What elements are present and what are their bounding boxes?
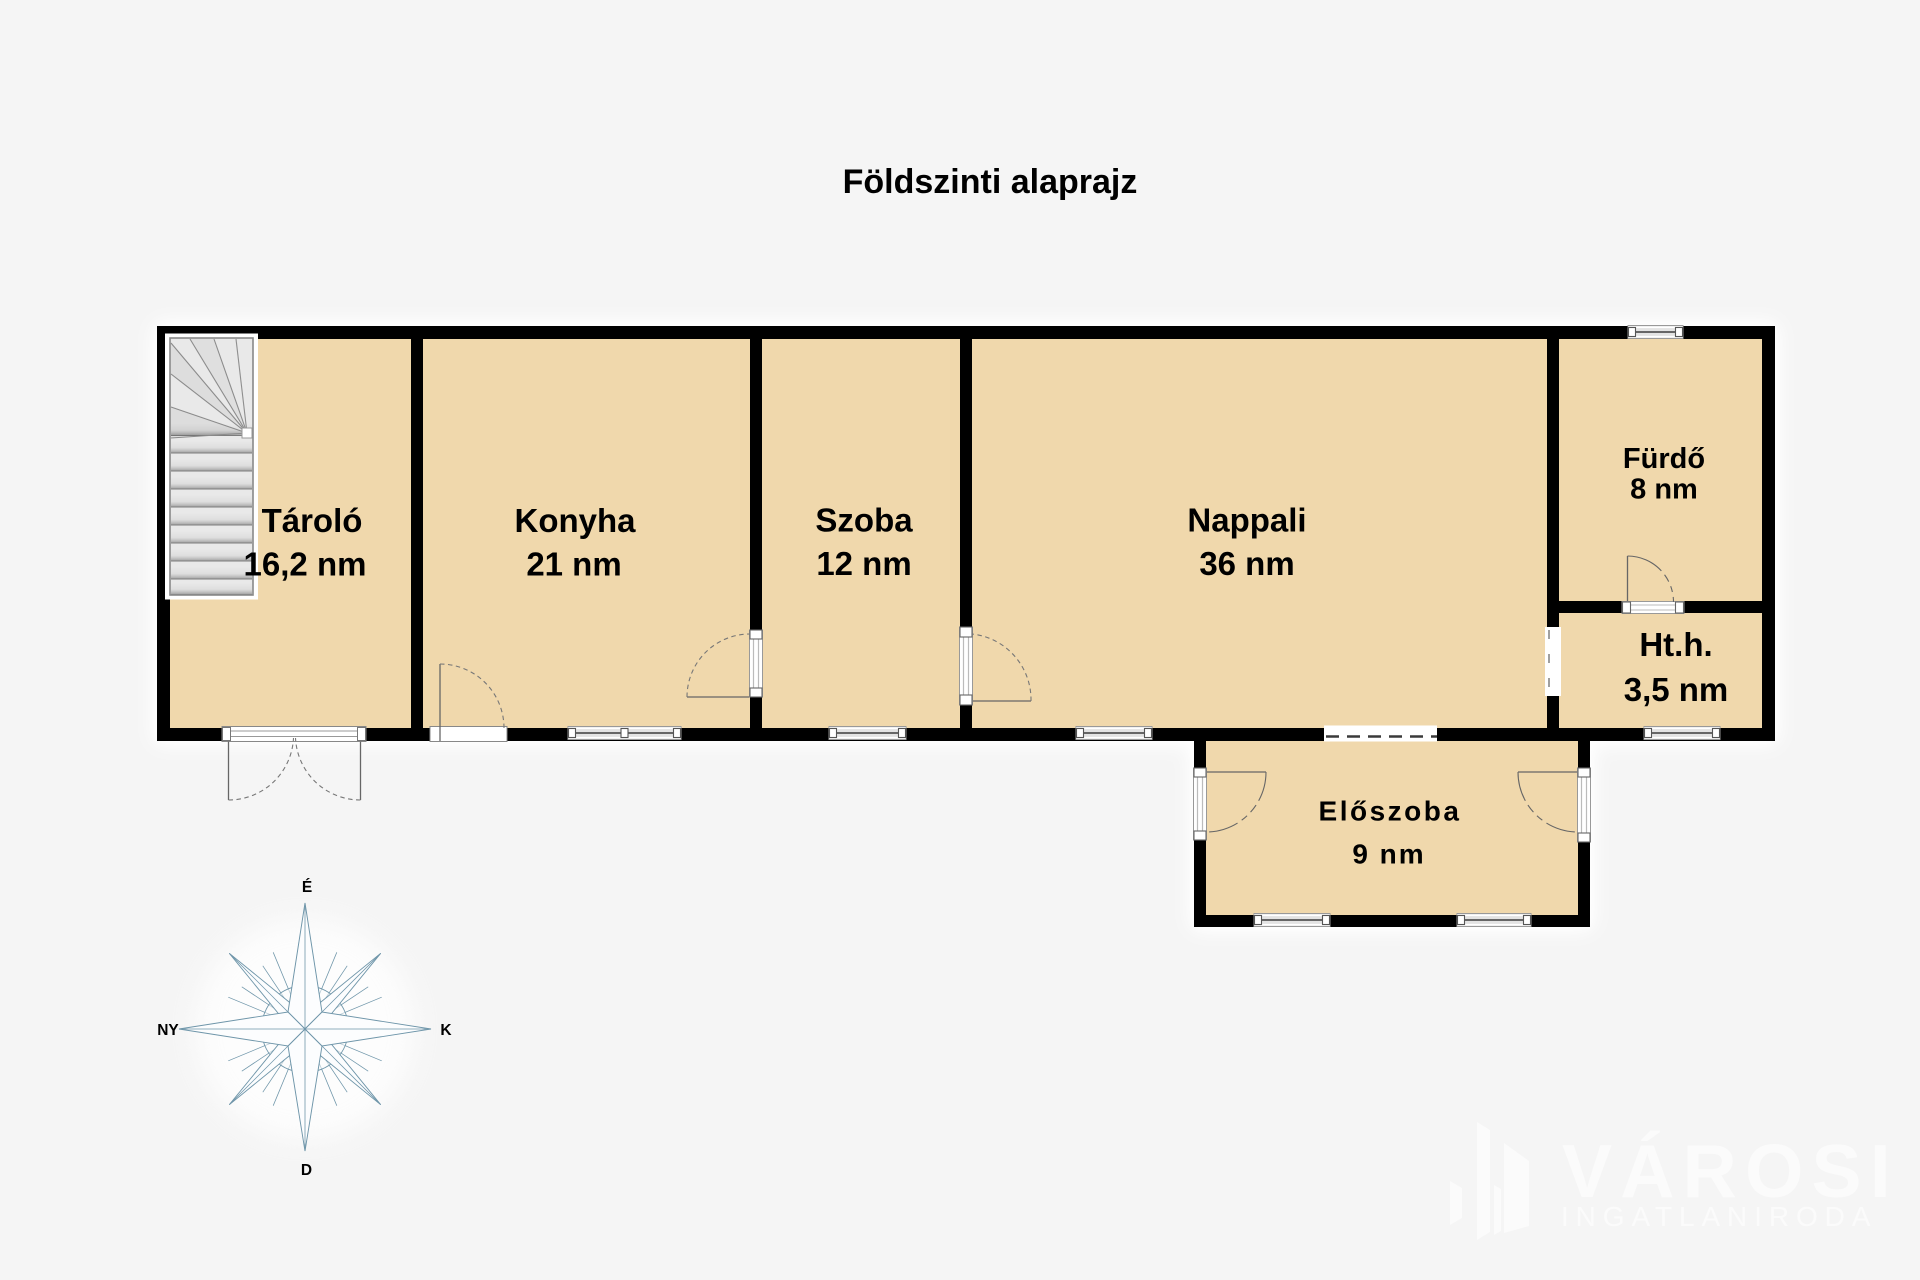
svg-text:Ht.h.: Ht.h. (1639, 626, 1712, 663)
svg-text:D: D (301, 1162, 312, 1179)
svg-text:Fürdő: Fürdő (1623, 443, 1705, 475)
svg-text:INGATLANIRODA: INGATLANIRODA (1561, 1201, 1877, 1232)
svg-text:8 nm: 8 nm (1630, 474, 1698, 506)
svg-text:21 nm: 21 nm (526, 546, 621, 583)
svg-text:36 nm: 36 nm (1199, 545, 1294, 582)
svg-text:Szoba: Szoba (815, 502, 913, 539)
svg-text:Előszoba: Előszoba (1319, 796, 1462, 827)
svg-text:9 nm: 9 nm (1352, 839, 1425, 870)
svg-text:3,5 nm: 3,5 nm (1624, 671, 1729, 708)
svg-text:Tároló: Tároló (262, 502, 363, 539)
svg-text:Nappali: Nappali (1187, 502, 1306, 539)
svg-text:É: É (302, 879, 312, 896)
svg-text:16,2 nm: 16,2 nm (244, 546, 367, 583)
svg-text:12 nm: 12 nm (816, 545, 911, 582)
svg-text:NY: NY (157, 1022, 179, 1039)
svg-text:K: K (440, 1022, 452, 1039)
svg-text:Konyha: Konyha (514, 502, 636, 539)
svg-text:Földszinti alaprajz: Földszinti alaprajz (843, 163, 1138, 201)
